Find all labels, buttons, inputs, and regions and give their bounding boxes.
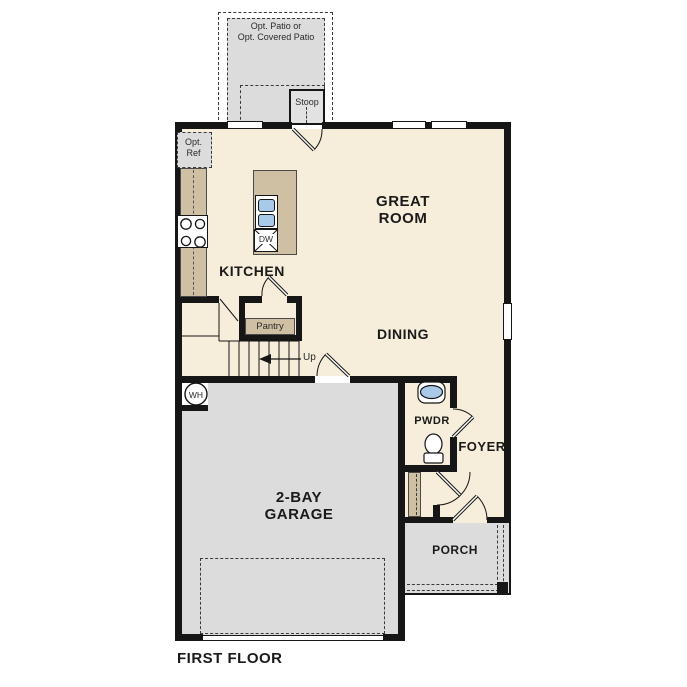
garage-label-line2: GARAGE — [249, 506, 349, 523]
kitchen-label: KITCHEN — [217, 263, 287, 280]
dining-label: DINING — [373, 326, 433, 343]
pwdr-sink — [418, 382, 445, 403]
door-hall-foyer — [437, 472, 470, 505]
door-front — [453, 496, 487, 520]
door-entry-rear — [293, 129, 322, 150]
plan-title: FIRST FLOOR — [177, 650, 307, 667]
up-arrow-icon — [259, 354, 301, 364]
garage-door-dashed-area — [200, 558, 385, 634]
dw-label: DW — [257, 234, 275, 244]
floor-plan: Opt. Patio or Opt. Covered Patio Stoop O… — [0, 0, 687, 687]
garage-label-line1: 2-BAY — [249, 489, 349, 506]
up-label: Up — [303, 352, 325, 363]
stove-burners — [181, 219, 205, 247]
pwdr-label: PWDR — [407, 415, 457, 427]
foyer-label: FOYER — [457, 440, 507, 454]
great-room-label-line1: GREAT — [363, 193, 443, 210]
porch-label: PORCH — [429, 544, 481, 557]
wh-label: WH — [185, 390, 207, 400]
great-room-label-line2: ROOM — [363, 210, 443, 227]
toilet — [424, 434, 443, 463]
stairs — [177, 299, 299, 376]
